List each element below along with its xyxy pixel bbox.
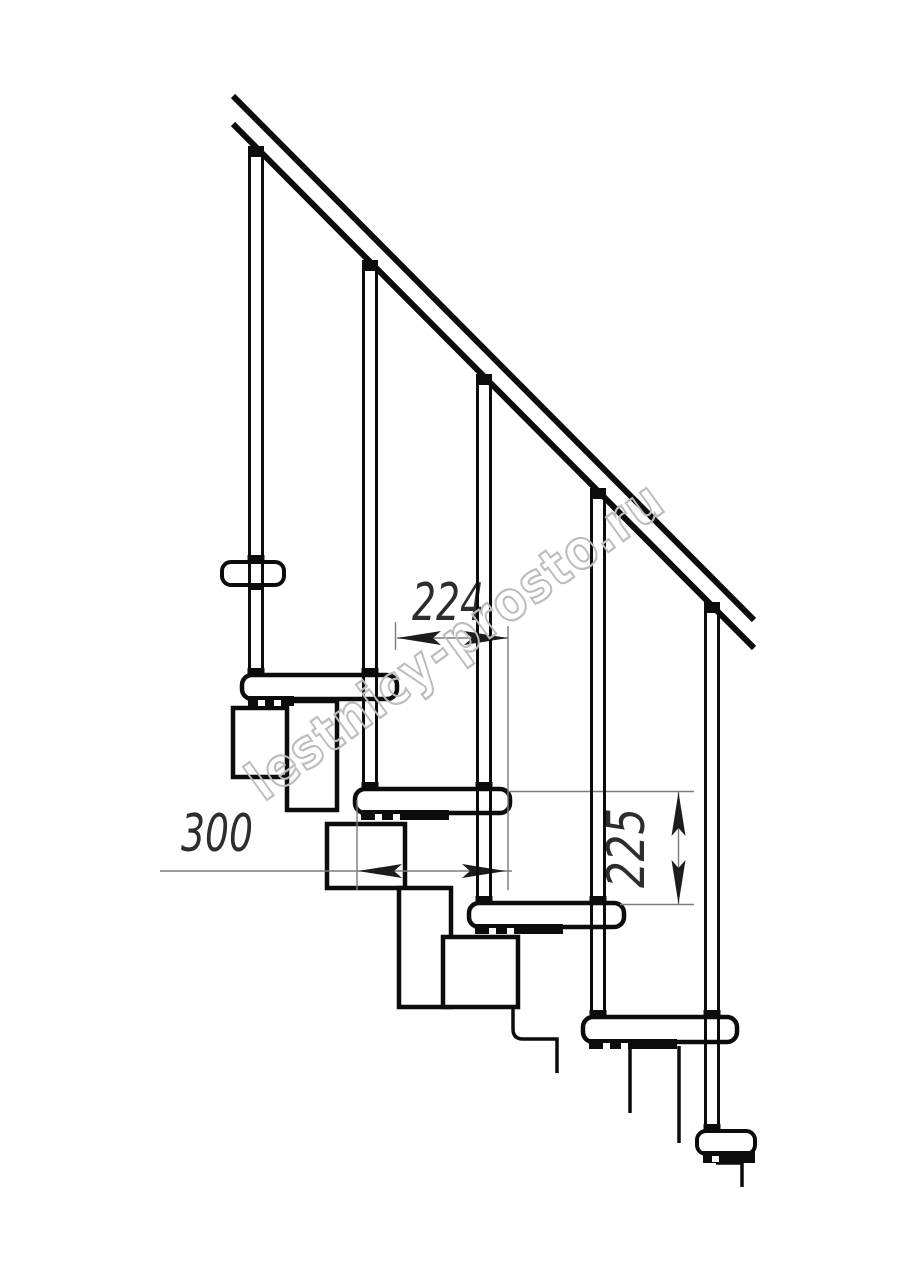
baluster-collar: [476, 782, 493, 789]
baluster-post: [250, 157, 263, 676]
connector-bar: [361, 810, 449, 820]
connector-bar: [475, 924, 563, 934]
tread-step-3: [469, 903, 624, 927]
baluster-collar: [704, 1010, 721, 1017]
baluster-collar: [248, 668, 265, 675]
baluster-1: [248, 146, 265, 676]
connector-notch: [603, 1043, 610, 1049]
baluster-collar: [476, 896, 493, 903]
connector-notch: [489, 928, 496, 934]
baluster-post: [706, 613, 719, 1132]
handrail: [233, 96, 754, 648]
bottom-module-edge-line: [716, 1163, 742, 1187]
baluster-collar: [248, 555, 265, 562]
tread-lower-flight-edge: [697, 1131, 755, 1154]
baluster-collar: [362, 782, 379, 789]
technical-drawing-page: 224 300 225: [0, 0, 914, 1280]
baluster-collar: [248, 585, 263, 590]
connector-notch: [375, 814, 382, 820]
lower-flight-edge-line: [513, 1007, 557, 1073]
connector-notch: [621, 1043, 628, 1049]
handrail-bottom-line: [233, 124, 754, 648]
connector-notch: [393, 814, 400, 820]
staircase-elevation-drawing: 224 300 225: [0, 0, 914, 1280]
connector-bar: [703, 1151, 755, 1163]
connector-notch: [712, 1156, 719, 1162]
module-sleeve-3: [443, 937, 518, 1007]
baluster-collar: [590, 1010, 607, 1017]
module-sleeve-2: [327, 824, 405, 888]
tread-step-4: [583, 1017, 737, 1042]
connector-bar: [248, 696, 294, 706]
connector-notch: [258, 700, 265, 706]
tread-upper-flight-edge: [222, 562, 284, 585]
handrail-top-line: [233, 96, 754, 620]
connector-bar: [589, 1039, 677, 1049]
connector-notch: [507, 928, 514, 934]
baluster-5: [704, 602, 721, 1132]
watermark-text: lestnicy-prosto.ru: [235, 468, 677, 813]
baluster-collar: [704, 1124, 721, 1131]
dimension-label-tread-depth: 300: [181, 804, 253, 864]
baluster-collar: [590, 896, 607, 903]
connector-notch: [274, 700, 281, 706]
tread-step-2: [355, 789, 510, 813]
